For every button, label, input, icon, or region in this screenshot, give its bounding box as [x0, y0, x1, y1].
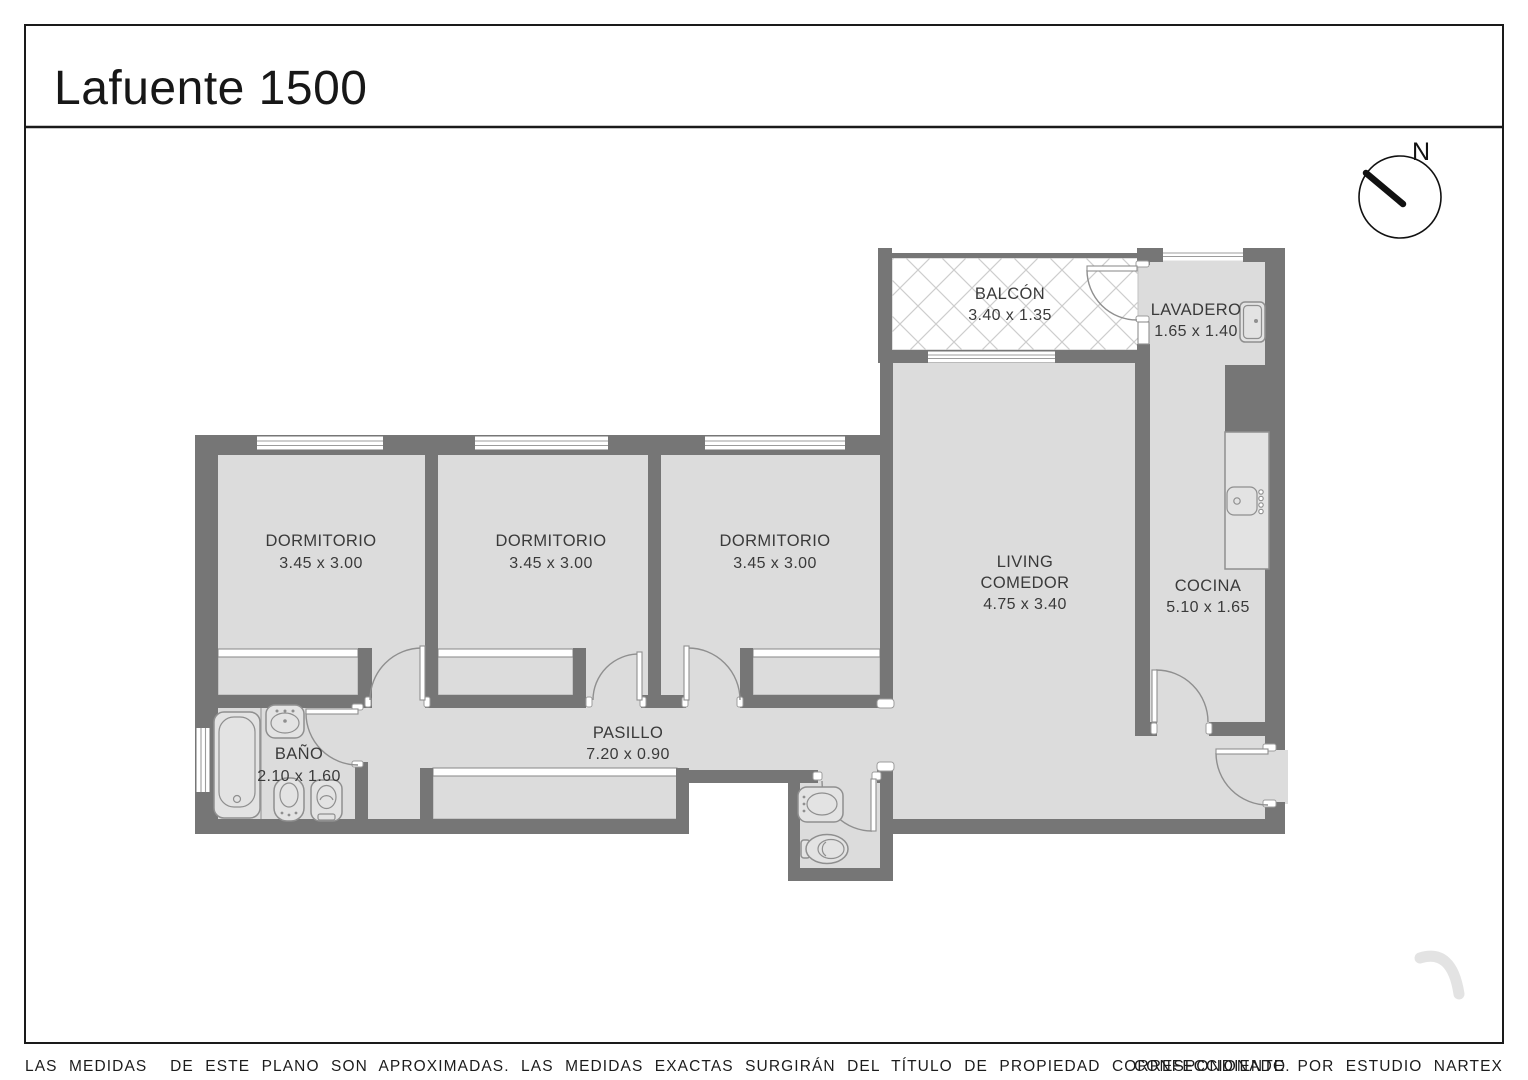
plan-title: Lafuente 1500 — [54, 62, 367, 115]
room-dims-pasillo: 7.20 x 0.90 — [586, 746, 670, 763]
room-label-cocina: COCINA — [1175, 577, 1242, 595]
closet-doors-dormitorio-3 — [753, 649, 880, 657]
compass-rose: N — [1359, 138, 1441, 238]
room-dims-living: 4.75 x 3.40 — [983, 596, 1067, 613]
wall-toilette-left — [788, 775, 800, 870]
wall-living-cocina — [1135, 350, 1150, 722]
footer-disclaimer: LAS MEDIDAS DE ESTE PLANO SON APROXIMADA… — [25, 1058, 1291, 1075]
closet-dormitorio-1 — [218, 651, 358, 695]
room-dims-dormitorio-3: 3.45 x 3.00 — [733, 555, 817, 572]
window-dormitorio-1 — [257, 437, 383, 450]
duct-block — [1225, 365, 1273, 432]
laundry-sink — [1240, 302, 1265, 342]
wall-south-jog — [687, 770, 801, 783]
floor-entrance-gap — [1265, 750, 1288, 804]
wall-dorm3-living — [880, 435, 893, 708]
wall-toilette-right — [880, 768, 893, 880]
room-label-living-line1: LIVING — [997, 553, 1054, 571]
room-label-dormitorio-1: DORMITORIO — [266, 532, 377, 550]
window-lavadero — [1163, 250, 1243, 261]
room-label-living-line2: COMEDOR — [981, 574, 1070, 592]
closet-dormitorio-3 — [753, 651, 880, 695]
footer-credit: CONFECCIONADO POR ESTUDIO NARTEX — [1134, 1058, 1503, 1075]
floor-plan-page: BALCÓN 3.40 x 1.35 LAVADERO 1.65 x 1.40 … — [0, 0, 1528, 1080]
wall-dorm1-dorm2 — [425, 435, 438, 708]
room-label-dormitorio-2: DORMITORIO — [496, 532, 607, 550]
wall-living-west-upper — [880, 363, 893, 438]
closet-dormitorio-2 — [438, 651, 573, 695]
window-living-balcony — [928, 352, 1055, 363]
wall-closet2-stub — [573, 648, 586, 708]
window-dormitorio-3 — [705, 437, 845, 450]
toilette-sink — [798, 787, 843, 822]
room-dims-dormitorio-2: 3.45 x 3.00 — [509, 555, 593, 572]
wall-hall-closet-stub — [420, 768, 433, 834]
room-dims-lavadero: 1.65 x 1.40 — [1154, 323, 1238, 340]
watermark-mark — [1420, 956, 1459, 994]
exterior-notch — [689, 783, 801, 843]
floor-plan-svg: BALCÓN 3.40 x 1.35 LAVADERO 1.65 x 1.40 … — [0, 0, 1528, 1080]
wall-bedrooms-south-3 — [641, 695, 686, 708]
room-label-bano: BAÑO — [275, 743, 323, 763]
wall-bathroom-stub — [355, 762, 368, 834]
room-dims-cocina: 5.10 x 1.65 — [1166, 599, 1250, 616]
room-label-balcon: BALCÓN — [975, 284, 1045, 303]
wall-cocina-south-east — [1209, 722, 1267, 736]
wall-balcony-left — [878, 248, 892, 363]
closet-doors-dormitorio-2 — [438, 649, 573, 657]
room-label-pasillo: PASILLO — [593, 724, 663, 742]
compass-north-label: N — [1412, 138, 1430, 166]
compass-circle — [1359, 156, 1441, 238]
room-dims-bano: 2.10 x 1.60 — [257, 768, 341, 785]
room-label-lavadero: LAVADERO — [1151, 301, 1242, 319]
bathroom-sink — [266, 705, 304, 738]
wall-south-west — [195, 819, 689, 834]
closet-doors-dormitorio-1 — [218, 649, 358, 657]
room-dims-balcon: 3.40 x 1.35 — [968, 307, 1052, 324]
wall-balcony-rail — [888, 253, 1138, 258]
wall-bedrooms-south-2 — [425, 695, 586, 708]
wall-dorm2-dorm3 — [648, 435, 661, 708]
window-bathroom — [197, 728, 210, 792]
closet-doors-hallway — [433, 768, 677, 776]
room-label-dormitorio-3: DORMITORIO — [720, 532, 831, 550]
floor-entry-hall — [1137, 724, 1272, 820]
wall-south-east — [893, 819, 1285, 834]
wall-bedrooms-south-4 — [740, 695, 893, 708]
window-dormitorio-2 — [475, 437, 608, 450]
wall-top-lavadero-right — [1243, 248, 1285, 262]
room-dims-dormitorio-1: 3.45 x 3.00 — [279, 555, 363, 572]
toilet — [311, 780, 342, 821]
wall-toilette-bottom — [788, 868, 893, 881]
bathtub — [214, 712, 260, 818]
